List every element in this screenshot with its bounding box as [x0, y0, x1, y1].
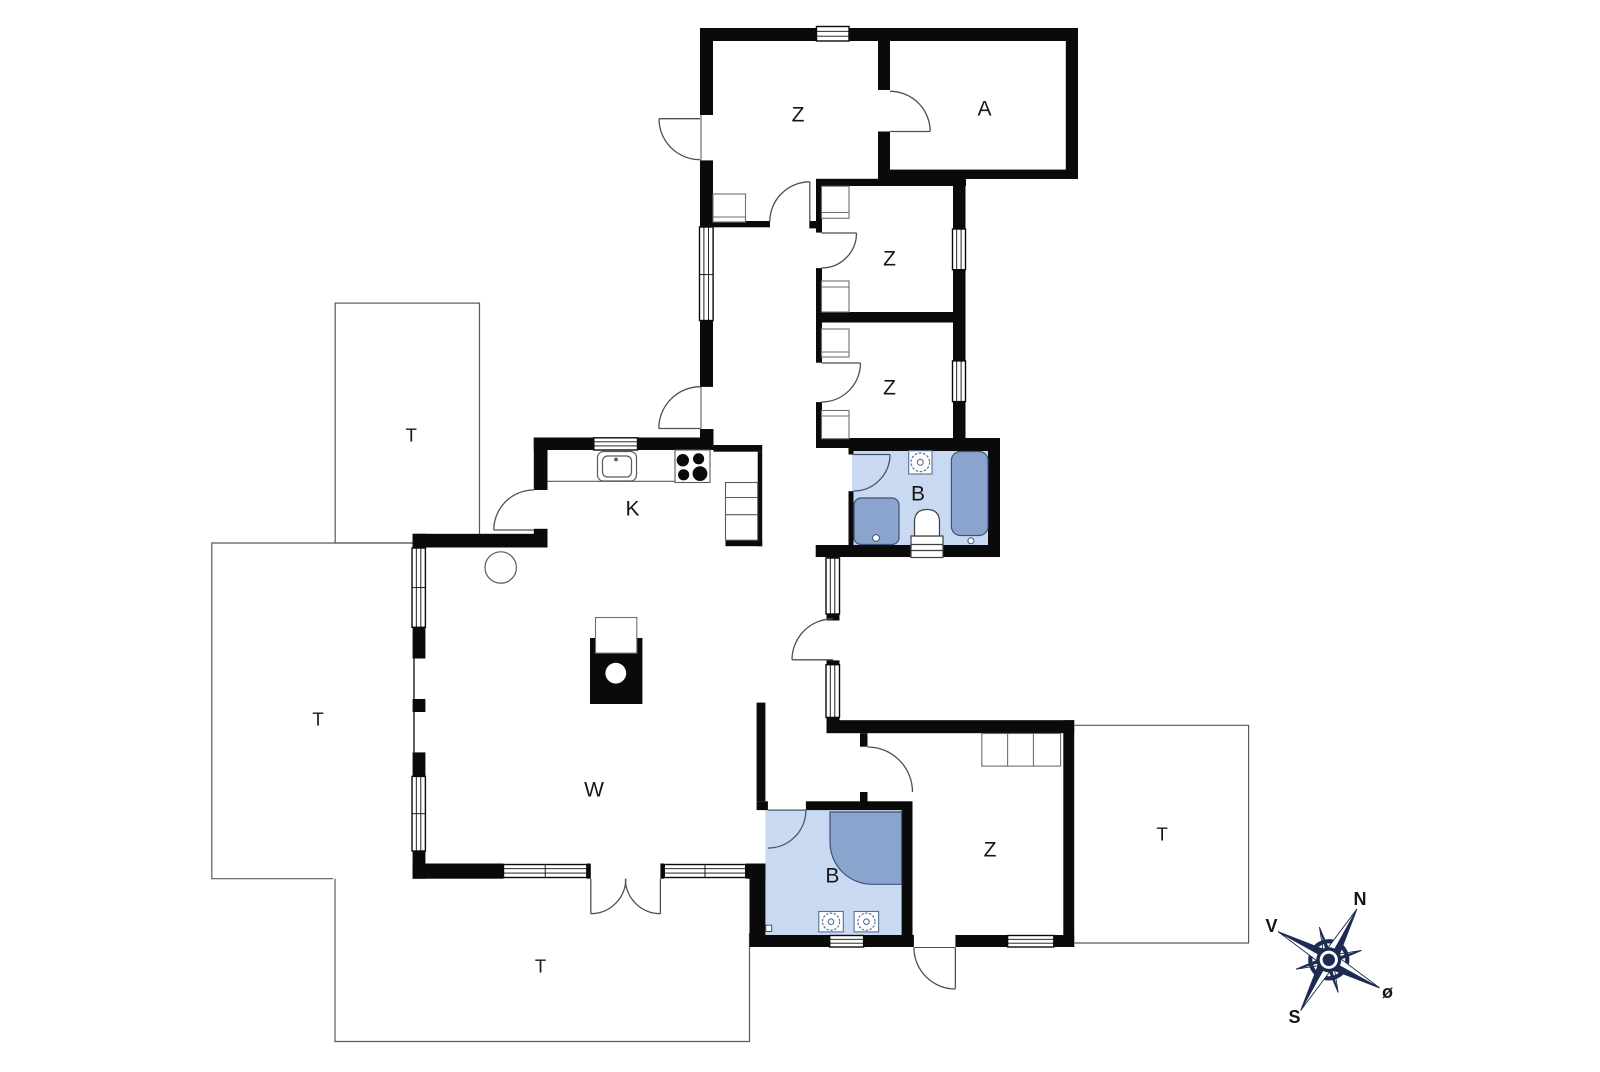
svg-text:Z: Z	[883, 248, 896, 271]
svg-text:W: W	[584, 779, 604, 802]
svg-text:T: T	[535, 956, 546, 977]
svg-text:B: B	[825, 865, 839, 888]
svg-text:A: A	[977, 98, 991, 121]
svg-text:T: T	[406, 425, 417, 446]
svg-text:K: K	[625, 498, 639, 521]
svg-text:Z: Z	[883, 377, 896, 400]
svg-text:ø: ø	[1382, 982, 1393, 1002]
svg-text:B: B	[911, 483, 925, 506]
svg-text:T: T	[1157, 824, 1168, 845]
svg-text:S: S	[1288, 1007, 1300, 1027]
svg-text:Z: Z	[984, 839, 997, 862]
svg-text:V: V	[1265, 916, 1277, 936]
svg-text:N: N	[1354, 889, 1367, 909]
svg-text:Z: Z	[792, 104, 805, 127]
svg-text:T: T	[312, 709, 323, 730]
